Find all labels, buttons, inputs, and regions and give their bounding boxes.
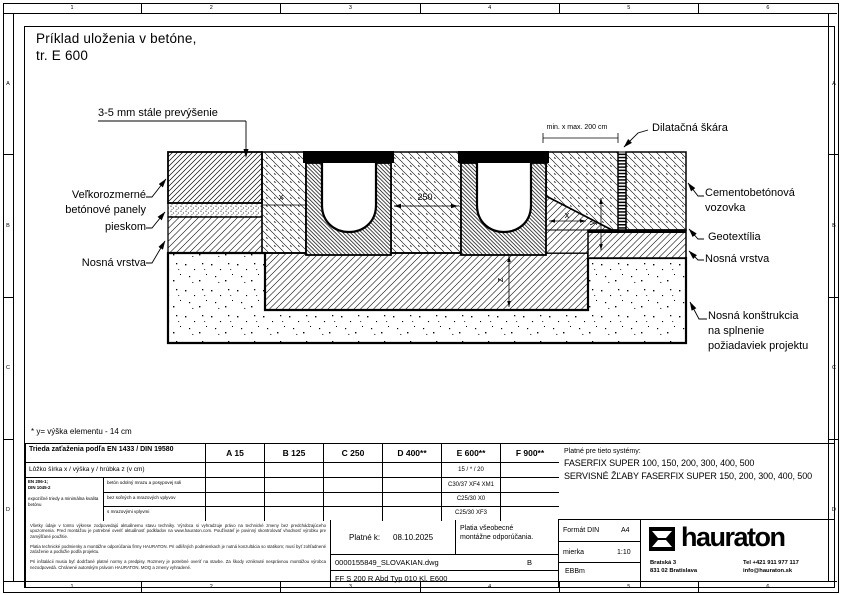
callout-geotextile: Geotextília (708, 230, 761, 244)
concrete-row3-c250 (324, 507, 383, 521)
concrete-row1-f900 (501, 478, 559, 493)
callout-panels-line2: betónové panely (30, 203, 146, 217)
author-cell: EBBm (559, 563, 641, 587)
disclaimer-paragraph-2: Platia technické podmienky a montážne od… (30, 544, 326, 555)
concrete-row3-b125 (265, 507, 324, 521)
dim-250: 250 (408, 192, 442, 202)
scale-label: mierka (563, 548, 584, 557)
callout-base-layer-left: Nosná vrstva (30, 256, 146, 270)
footnote: * y= výška elementu - 14 cm (31, 427, 132, 436)
callout-expansion-joint: Dilatačná škára (652, 121, 728, 135)
concrete-row1-e600: C30/37 XF4 XM1 (442, 478, 501, 493)
expansion-joint (618, 152, 626, 230)
callout-base-layer-right: Nosná vrstva (705, 252, 769, 266)
bedding-c250 (324, 463, 383, 478)
file-name: 0000155849_SLOVAKIAN.dwg (335, 558, 439, 567)
callout-overhang: 3-5 mm stále prevýšenie (98, 106, 218, 120)
systems-line1: FASERFIX SUPER 100, 150, 200, 300, 400, … (564, 458, 754, 468)
left-panel-stack (168, 152, 262, 253)
bedding-row-label: Lôžko šírka x / výška y / hrúbka z (v cm… (26, 463, 206, 478)
valid-label: Platné k: (349, 533, 380, 542)
product-row: FF S 200 R Abd Typ 010 Kl. E600 (331, 571, 559, 587)
company-contact: Tel +421 911 977 117 info@hauraton.sk (743, 560, 799, 575)
bedding-e600: 15 / * / 20 (442, 463, 501, 478)
company-cell: hauraton Bratská 3 831 02 Bratislava Tel… (641, 520, 835, 587)
disclaimer-paragraph-1: Všetky údaje v tomto výkrese zodpovedajú… (30, 523, 326, 539)
company-address: Bratská 3 831 02 Bratislava (650, 560, 697, 575)
standard-line2: DIN 1045-2 (28, 485, 101, 491)
concrete-row2-a15 (206, 493, 265, 507)
callout-structure-line3: požiadaviek projektu (708, 339, 808, 353)
channel-a (303, 151, 394, 255)
drawing-sheet: 1 2 3 4 5 6 1 2 3 4 5 6 A B C D A B C D … (0, 0, 842, 595)
disclaimer-cell: Všetky údaje v tomto výkrese zodpovedajú… (26, 520, 331, 587)
brand-wordmark: hauraton (681, 524, 785, 551)
general-note-line2: montážne odporúčania. (460, 533, 554, 542)
scale-value: 1:10 (617, 548, 631, 557)
class-f900: F 900** (501, 444, 559, 463)
concrete-row2-b125 (265, 493, 324, 507)
class-e600: E 600** (442, 444, 501, 463)
dim-y: y (587, 217, 597, 229)
callout-sand: pieskom (30, 220, 146, 234)
concrete-row3-e600: C25/30 XF3 (442, 507, 501, 521)
concrete-row3-f900 (501, 507, 559, 521)
hauraton-logo-icon (649, 527, 675, 553)
systems-title: Platné pre tieto systémy: (564, 448, 641, 455)
callout-panels-line1: Veľkorozmerné (30, 188, 146, 202)
concrete-row1-label: betón odolný mrazu a posypovej soli (104, 478, 206, 493)
general-note-cell: Platia všeobecné montážne odporúčania. (456, 520, 559, 555)
callout-pavement-line1: Cementobetónová (705, 186, 795, 200)
bedding-f900 (501, 463, 559, 478)
bedding-a15 (206, 463, 265, 478)
scale-cell: mierka 1:10 (559, 542, 641, 563)
channel-b (458, 151, 549, 255)
table-header-classes: Trieda zaťaženia podľa EN 1433 / DIN 195… (26, 444, 206, 463)
concrete-row2-c250 (324, 493, 383, 507)
disclaimer-paragraph-3: Pri inštalácii musia byť dodržané platné… (30, 559, 326, 570)
valid-date: 08.10.2025 (393, 533, 433, 542)
callout-structure-line2: na splnenie (708, 324, 764, 338)
class-c250: C 250 (324, 444, 383, 463)
concrete-row2-f900 (501, 493, 559, 507)
systems-box: Platné pre tieto systémy: FASERFIX SUPER… (558, 443, 834, 520)
concrete-row2-label: bez soľných a mrazových vplyvov (104, 493, 206, 507)
format-cell: Formát DIN A4 (559, 520, 641, 542)
base-structure (168, 253, 686, 343)
address-line1: Bratská 3 (650, 560, 697, 568)
format-label: Formát DIN (563, 526, 599, 535)
load-class-table: Trieda zaťaženia podľa EN 1433 / DIN 195… (25, 443, 558, 520)
concrete-row1-b125 (265, 478, 324, 493)
contact-email: info@hauraton.sk (743, 568, 799, 576)
concrete-row3-d400 (383, 507, 442, 521)
bedding-d400 (383, 463, 442, 478)
callout-structure-line1: Nosná konštrukcia (708, 309, 799, 323)
concrete-standard-cell: EN 206-1; DIN 1045-2 expozičné triedy a … (26, 478, 104, 521)
format-value: A4 (621, 526, 630, 535)
class-a15: A 15 (206, 444, 265, 463)
class-d400: D 400** (383, 444, 442, 463)
file-row: 0000155849_SLOVAKIAN.dwg B (331, 555, 559, 571)
standard-note: expozičné triedy a minimálna kvalita bet… (28, 496, 101, 507)
callout-pavement-line2: vozovka (705, 201, 745, 215)
revision-letter: B (527, 558, 532, 567)
concrete-row3-a15 (206, 507, 265, 521)
contact-phone: Tel +421 911 977 117 (743, 560, 799, 568)
product-name: FF S 200 R Abd Typ 010 Kl. E600 (335, 574, 447, 583)
systems-line2: SERVISNÉ ŽĽABY FASERFIX SUPER 150, 200, … (564, 471, 812, 481)
address-line2: 831 02 Bratislava (650, 568, 697, 576)
valid-date-cell: Platné k: 08.10.2025 (331, 520, 456, 555)
concrete-row2-e600: C25/30 X0 (442, 493, 501, 507)
title-block: Všetky údaje v tomto výkrese zodpovedajú… (25, 520, 834, 587)
concrete-row1-c250 (324, 478, 383, 493)
dim-min-max: min. x max. 200 cm (534, 124, 620, 131)
concrete-row1-d400 (383, 478, 442, 493)
concrete-row2-d400 (383, 493, 442, 507)
general-note-line1: Platia všeobecné (460, 524, 554, 533)
dim-z: z (495, 274, 505, 286)
concrete-row3-label: s mrazovými vplyvmi (104, 507, 206, 521)
dim-x-right: x (558, 210, 576, 220)
author-initials: EBBm (565, 567, 585, 576)
dim-x-left: x (272, 192, 290, 202)
concrete-row1-a15 (206, 478, 265, 493)
class-b125: B 125 (265, 444, 324, 463)
bedding-b125 (265, 463, 324, 478)
